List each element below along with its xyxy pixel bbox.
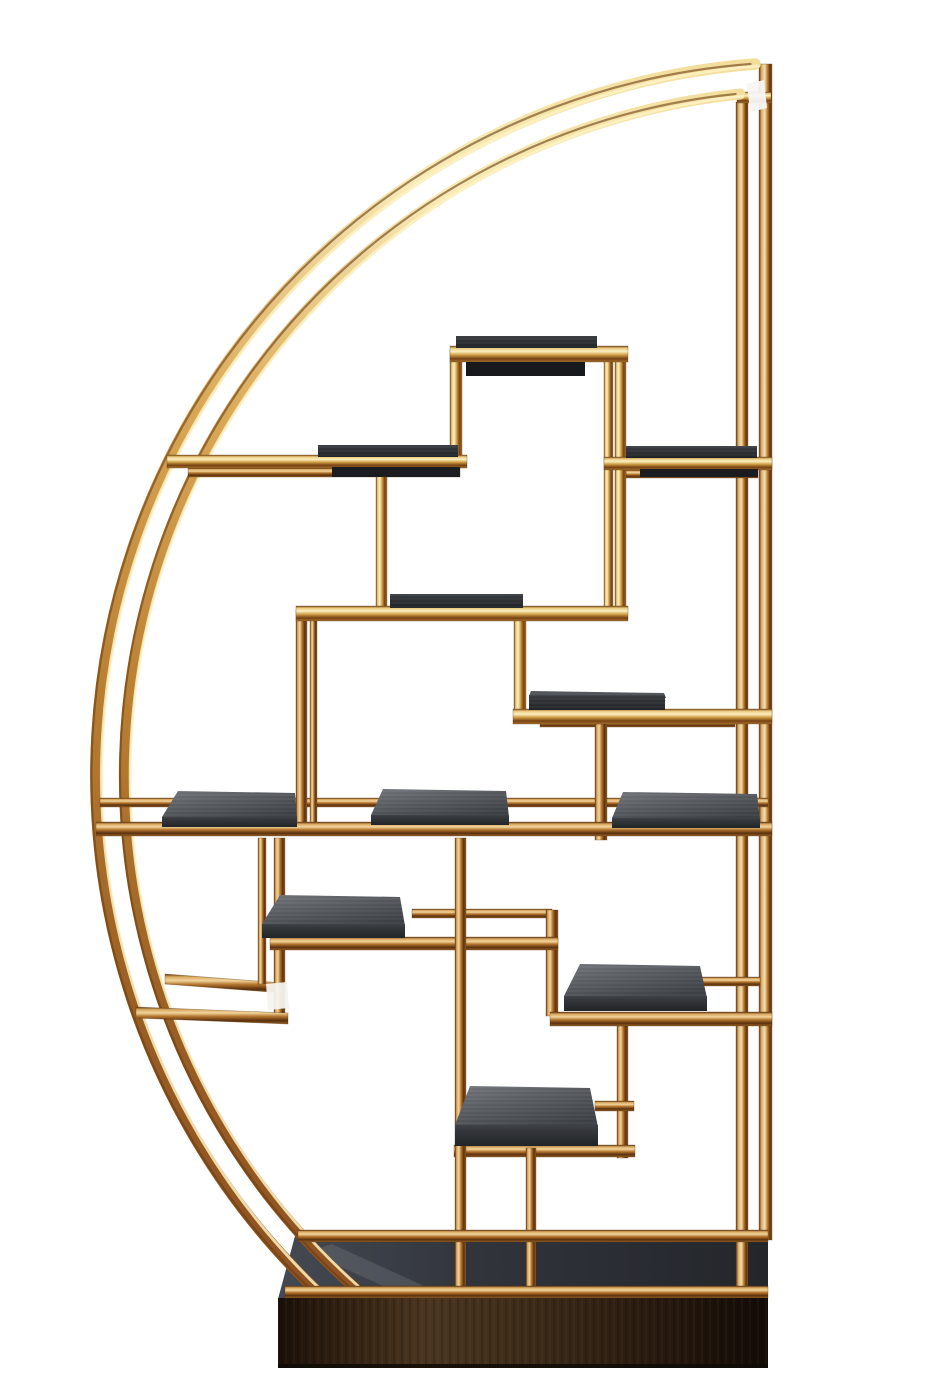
shelf-upper-right-front-texture	[626, 446, 757, 458]
back-post	[759, 64, 772, 1240]
joint-highlight-top	[747, 80, 767, 112]
shelf-upper-left-front-texture	[318, 445, 458, 457]
plinth-front-texture	[278, 1298, 768, 1368]
upper-mid-upright	[376, 466, 387, 614]
mid-frame-left-upright	[296, 610, 307, 828]
shelf-top-underside	[466, 362, 585, 376]
shelf-row-right-top-texture	[612, 792, 760, 820]
top-frame-right-upright	[615, 349, 626, 612]
group-arcs	[91, 64, 758, 1293]
mid-rail	[296, 606, 628, 621]
group-back-rails	[100, 468, 768, 993]
bottom-shelf-leg	[526, 1148, 536, 1290]
base-front-rail	[285, 1286, 768, 1298]
shelf-bottom-front	[455, 1125, 598, 1146]
product-photo-etagere	[0, 0, 933, 1400]
outer-arc-shade	[91, 64, 750, 1293]
inner-arc-highlight	[130, 96, 743, 1286]
front-post	[736, 102, 748, 1293]
step-upright	[546, 910, 558, 1016]
outer-arc-highlight	[101, 66, 758, 1291]
bottom-shelf-rail	[454, 1145, 635, 1157]
shelf-mid-front-texture	[529, 695, 665, 710]
lower-right-shelf-rail	[550, 1012, 772, 1026]
left-box-front-rail	[136, 1007, 288, 1024]
bottom-shelf-bracket	[595, 1101, 634, 1111]
group-speculars	[266, 80, 767, 1010]
shelf-upper-left-underside	[332, 467, 460, 477]
shelf-upper-right-underside	[640, 469, 758, 477]
left-lower-shelf-rail	[270, 937, 558, 950]
outer-arc	[96, 64, 755, 1293]
right-shelf-rail	[604, 457, 772, 470]
group-legs	[455, 838, 536, 1290]
lower-right-back-rail	[698, 977, 760, 986]
shelf-left-lower-front	[262, 924, 405, 938]
shelf-mid-left-front-texture	[390, 594, 523, 608]
shelf-row-mid-top-texture	[371, 789, 509, 817]
top-frame-right-inner-upright	[604, 353, 613, 612]
shelf-row-left-top-texture	[162, 791, 297, 819]
base-back-rail	[298, 1230, 768, 1242]
left-box-back-upright	[258, 838, 266, 984]
etagere-illustration	[0, 0, 933, 1400]
shelf-row-right-front	[612, 818, 760, 828]
joint-highlight-left	[266, 982, 289, 1010]
lower-shelf-upright	[617, 1026, 628, 1158]
shelf-right-lower-front	[564, 996, 707, 1011]
shelf-row-mid-front	[371, 815, 509, 825]
step-back-rail	[412, 909, 552, 918]
plinth-bottom-edge	[278, 1364, 768, 1368]
shelf-bottom-top-texture	[455, 1086, 598, 1127]
shelf-top-front-texture	[456, 336, 597, 348]
top-frame-rail	[450, 346, 628, 362]
mid-frame-left-back-upright	[310, 612, 317, 826]
shelf-row-left-front	[162, 817, 297, 827]
center-leg	[455, 838, 466, 1290]
group-posts	[736, 64, 772, 1293]
mid-frame-inner-upright	[514, 618, 526, 716]
mid-shelf-rail	[513, 709, 772, 724]
shelf-left-lower-top-texture	[262, 895, 405, 926]
shelf-right-lower-top-texture	[564, 964, 707, 998]
